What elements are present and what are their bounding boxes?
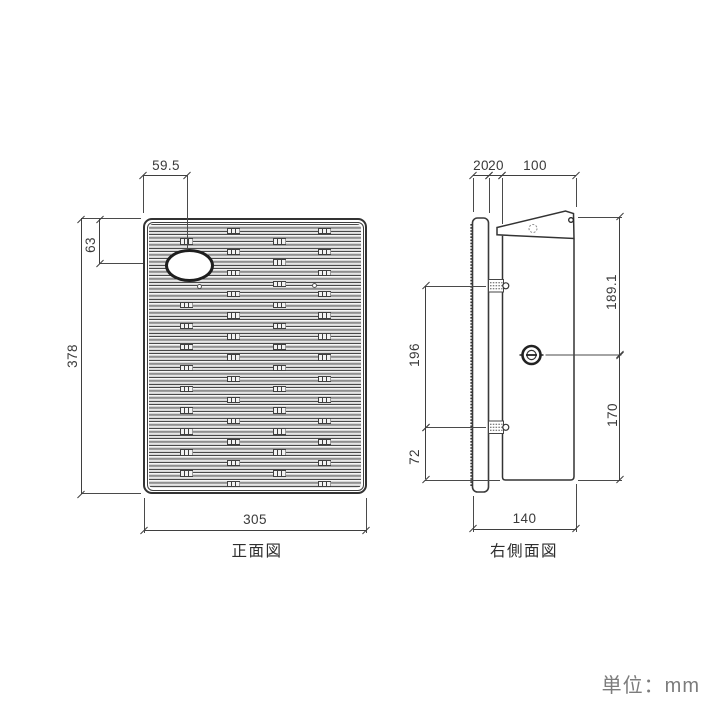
dim-line-upper-height xyxy=(619,217,620,355)
side-view-linework xyxy=(0,0,720,720)
ext-line xyxy=(473,178,474,212)
dim-line-body-depth xyxy=(502,175,575,176)
technical-drawing-canvas: 59.5 63 378 305 正面図 xyxy=(0,0,720,720)
dim-line-bracket-spacing xyxy=(425,286,426,427)
dim-text-140: 140 xyxy=(473,510,576,526)
ext-line xyxy=(578,480,622,481)
dim-text-170: 170 xyxy=(604,398,620,432)
dim-text-72: 72 xyxy=(406,443,422,471)
ext-line xyxy=(187,175,188,249)
side-back-plate xyxy=(473,218,489,492)
ext-line xyxy=(489,178,490,213)
ext-line xyxy=(502,178,503,224)
ext-line xyxy=(425,286,486,287)
dim-line-lower-bracket xyxy=(425,427,426,479)
ext-line xyxy=(425,427,486,428)
dim-text-189-1: 189.1 xyxy=(603,270,619,314)
unit-note: 単位：mm xyxy=(578,669,700,698)
dim-text-196: 196 xyxy=(406,338,422,372)
ext-line xyxy=(425,480,500,481)
lid-bolt xyxy=(569,218,574,223)
dim-text-100: 100 xyxy=(517,157,553,173)
dim-line-overall-depth xyxy=(473,529,575,530)
dim-text-20b: 20 xyxy=(482,157,510,173)
ext-line xyxy=(576,178,577,207)
ext-line xyxy=(578,217,622,218)
side-lid-outline xyxy=(497,211,574,239)
side-view-title: 右側面図 xyxy=(458,539,590,561)
